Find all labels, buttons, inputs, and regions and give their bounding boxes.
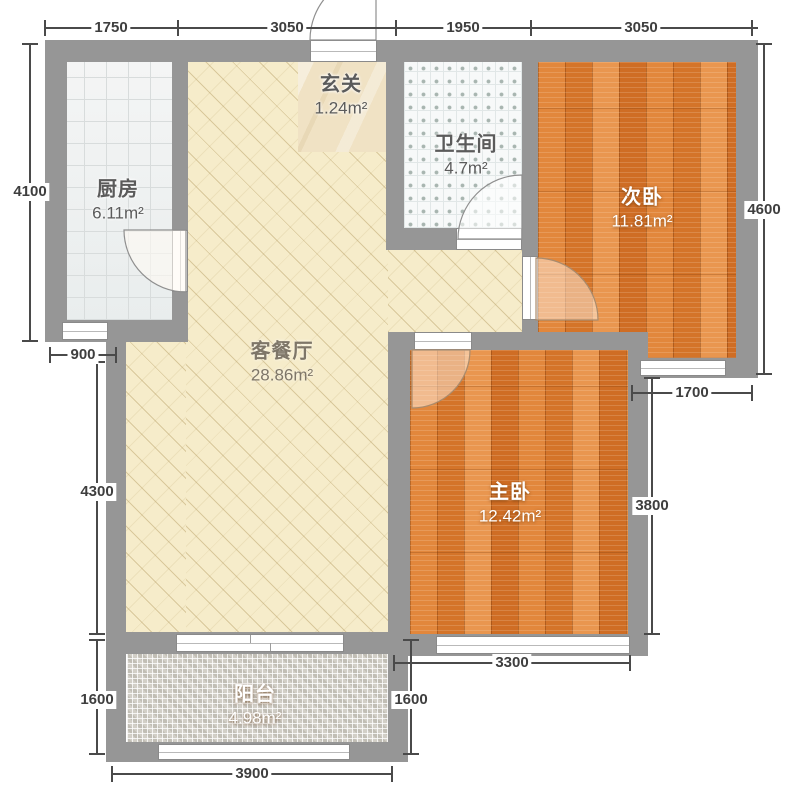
dim-left-4: 1600 xyxy=(77,691,116,709)
dim-tick xyxy=(629,655,631,671)
living-dining-area: 28.86m² xyxy=(251,366,314,386)
living-floor-left-extension xyxy=(126,342,186,634)
dim-tick xyxy=(751,20,753,36)
wall-master-left xyxy=(388,332,410,634)
wall-master-right xyxy=(628,332,648,656)
dim-tick xyxy=(756,43,772,45)
dim-right-1: 4600 xyxy=(744,201,783,219)
dim-top-2: 3050 xyxy=(267,19,306,37)
corridor-floor xyxy=(388,250,522,332)
master-bedroom-name: 主卧 xyxy=(479,476,541,505)
dim-tick xyxy=(395,20,397,36)
dim-top-4: 3050 xyxy=(621,19,660,37)
dim-left-2: 900 xyxy=(67,346,98,364)
master-door-opening xyxy=(414,332,472,350)
dim-tick xyxy=(89,639,105,641)
dim-left-1: 4100 xyxy=(10,183,49,201)
dim-tick xyxy=(403,753,419,755)
dim-left-3: 4300 xyxy=(77,483,116,501)
master-bedroom-window xyxy=(436,636,630,654)
bathroom-name: 卫生间 xyxy=(435,128,498,157)
kitchen-area: 6.11m² xyxy=(92,204,144,224)
dim-right-2: 1700 xyxy=(672,384,711,402)
dim-tick xyxy=(644,633,660,635)
balcony-label: 阳台 4.98m² xyxy=(229,678,282,729)
entrance-door-swing xyxy=(310,0,376,40)
kitchen-name: 厨房 xyxy=(92,173,144,202)
balcony-name: 阳台 xyxy=(229,678,282,707)
master-bedroom-label: 主卧 12.42m² xyxy=(479,476,541,527)
dim-bottom-2: 3300 xyxy=(492,654,531,672)
master-bedroom-area: 12.42m² xyxy=(479,507,541,527)
dim-top-3: 1950 xyxy=(443,19,482,37)
dim-tick xyxy=(756,373,772,375)
dim-tick xyxy=(177,20,179,36)
dim-tick xyxy=(391,766,393,782)
second-bedroom-window xyxy=(640,360,726,376)
floorplan-canvas: 厨房 6.11m² 玄关 1.24m² 卫生间 4.7m² 次卧 11.81m²… xyxy=(0,0,800,800)
entrance-door-opening xyxy=(310,40,377,62)
dim-tick xyxy=(115,347,117,363)
kitchen-window xyxy=(62,322,108,340)
foyer-area-label: 1.24m² xyxy=(315,99,368,119)
dim-tick xyxy=(631,385,633,401)
kitchen-label: 厨房 6.11m² xyxy=(92,173,144,224)
bathroom-area: 4.7m² xyxy=(435,159,498,179)
dim-tick xyxy=(44,20,46,36)
dim-tick xyxy=(751,385,753,401)
dim-tick xyxy=(89,753,105,755)
dim-tick xyxy=(22,340,38,342)
wall-kitchen-right xyxy=(172,62,188,342)
second-bedroom-name: 次卧 xyxy=(611,181,672,210)
dim-tick xyxy=(644,377,660,379)
foyer-label: 玄关 1.24m² xyxy=(315,68,368,119)
second-bedroom-door-opening xyxy=(522,256,538,320)
balcony-area: 4.98m² xyxy=(229,709,282,729)
dim-tick xyxy=(22,43,38,45)
second-bedroom-label: 次卧 11.81m² xyxy=(611,181,672,232)
dim-tick xyxy=(111,766,113,782)
dim-right-3: 3800 xyxy=(632,497,671,515)
bathroom-label: 卫生间 4.7m² xyxy=(435,128,498,179)
wall-bathroom-left xyxy=(386,62,404,228)
bathroom-door-opening xyxy=(456,228,522,250)
second-bedroom-area: 11.81m² xyxy=(611,212,672,232)
dim-tick xyxy=(530,20,532,36)
dim-tick xyxy=(49,347,51,363)
living-dining-name: 客餐厅 xyxy=(251,335,314,364)
foyer-name: 玄关 xyxy=(315,68,368,97)
balcony-sliding-door xyxy=(176,634,344,652)
dim-bottom-1: 3900 xyxy=(232,765,271,783)
wall-top xyxy=(45,40,758,62)
living-dining-label: 客餐厅 28.86m² xyxy=(251,335,314,386)
dim-bottom-3: 1600 xyxy=(391,691,430,709)
dim-tick xyxy=(393,655,395,671)
dim-top-1: 1750 xyxy=(91,19,130,37)
dim-tick xyxy=(89,633,105,635)
kitchen-door-opening xyxy=(172,230,188,292)
dim-tick xyxy=(403,639,419,641)
balcony-window xyxy=(158,744,350,760)
